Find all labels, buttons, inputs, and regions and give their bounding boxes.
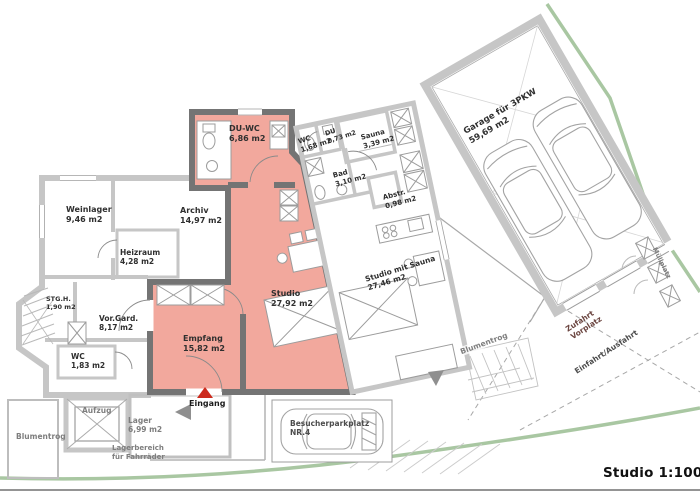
room-area: 1,90 m2 — [46, 303, 76, 311]
room-name: Heizraum — [120, 248, 160, 257]
room-name: Archiv — [180, 206, 222, 216]
room-area: 14,97 m2 — [180, 216, 222, 226]
room-label-stgh: STG.H. 1,90 m2 — [46, 295, 76, 311]
room-area: 6,86 m2 — [229, 134, 265, 144]
room-name: Studio — [271, 289, 313, 299]
room-label-empfang: Empfang 15,82 m2 — [183, 334, 225, 354]
floor-plan-page: DU-WC 6,86 m2 WC 1,68 m2 DU 0,73 m2 Saun… — [0, 0, 700, 500]
room-label-archiv: Archiv 14,97 m2 — [180, 206, 222, 226]
room-name: Empfang — [183, 334, 225, 344]
room-name: DU-WC — [229, 124, 265, 134]
room-name: Lager — [128, 416, 162, 425]
room-name: Vor.Gard. — [99, 314, 138, 323]
elevator-label: Aufzug — [82, 406, 111, 415]
room-name: STG.H. — [46, 295, 76, 303]
room-label-wc-left: WC 1,83 m2 — [71, 352, 105, 371]
bike-storage-label: Lagerbereich für Fahrräder — [112, 444, 165, 462]
room-label-weinlager: Weinlager 9,46 m2 — [66, 205, 112, 225]
room-area: 4,28 m2 — [120, 257, 160, 266]
room-area: 1,83 m2 — [71, 361, 105, 370]
room-name: Weinlager — [66, 205, 112, 215]
room-area: 15,82 m2 — [183, 344, 225, 354]
vorgard-wardrobe — [68, 322, 86, 344]
entrance-label: Eingang — [189, 399, 225, 409]
room-label-studio: Studio 27,92 m2 — [271, 289, 313, 309]
room-label-du-wc: DU-WC 6,86 m2 — [229, 124, 265, 144]
plan-scale-label: Studio 1:100 — [603, 465, 700, 482]
room-area: 9,46 m2 — [66, 215, 112, 225]
visitor-parking-label: Besucherparkplatz NR.4 — [290, 419, 369, 438]
room-area: 8,17 m2 — [99, 323, 138, 332]
garage — [425, 14, 681, 315]
planter-left-label: Blumentrog — [16, 432, 66, 441]
room-area: 27,92 m2 — [271, 299, 313, 309]
room-label-lager: Lager 6,99 m2 — [128, 416, 162, 435]
room-area: 6,99 m2 — [128, 425, 162, 434]
room-label-vorgard: Vor.Gard. 8,17 m2 — [99, 314, 138, 333]
room-label-heizraum: Heizraum 4,28 m2 — [120, 248, 160, 267]
room-name: WC — [71, 352, 105, 361]
